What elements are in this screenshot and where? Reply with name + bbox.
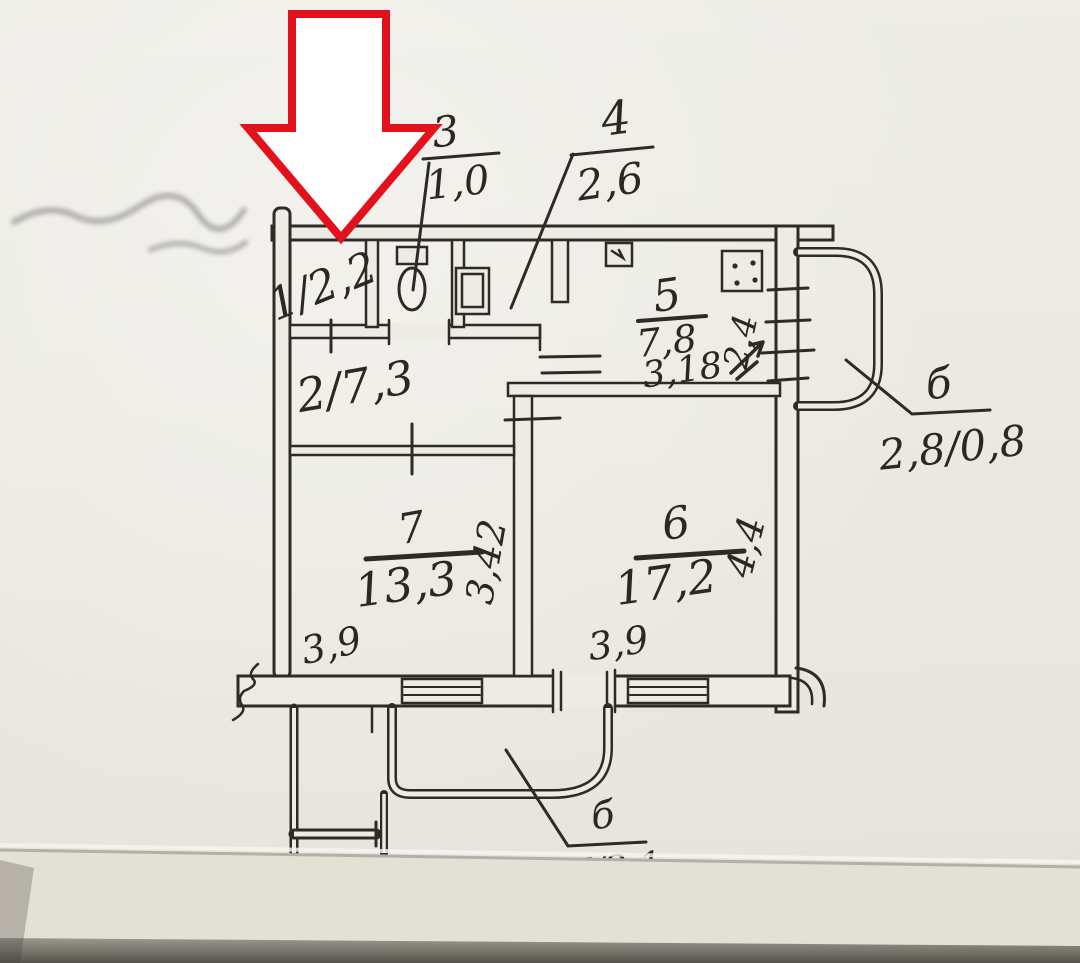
balcony-top-label: б <box>923 358 954 409</box>
stove-symbol <box>722 251 762 291</box>
lower-structure-lines <box>294 708 384 853</box>
room4-area: 2,6 <box>573 153 647 211</box>
toilet-fixture <box>397 247 427 310</box>
balcony-bottom-label: б <box>589 792 617 838</box>
red-arrow-marker <box>248 14 434 238</box>
sink-fixture <box>456 268 489 314</box>
room7-number: 7 <box>394 501 429 554</box>
room2-label: 2/7,3 <box>291 349 417 423</box>
wall-kitchen-left <box>552 240 568 302</box>
room6-area: 17,2 <box>611 548 720 616</box>
window <box>402 679 482 703</box>
wall-room2-room7 <box>290 446 514 455</box>
dimension-room7-width: 3,9 <box>297 617 365 673</box>
door-gap <box>389 323 449 340</box>
room5-number: 5 <box>650 268 685 322</box>
wall-tick <box>768 288 808 290</box>
wall-tick <box>768 378 808 381</box>
window <box>628 679 708 703</box>
dimension-room6-width: 3,9 <box>585 617 651 669</box>
wall-tick <box>766 320 810 322</box>
door-frame-tick <box>542 372 600 373</box>
faint-pencil-smudge <box>14 196 246 252</box>
dimension-room7-depth: 3,42 <box>457 516 515 607</box>
balcony-top-outline <box>798 252 878 406</box>
floor-plan-canvas: 1/2,2 2/7,3 3 1,0 4 2,6 5 7,8 3,18 2,4 7… <box>0 0 1080 963</box>
dimension-room6-depth: 4,4 <box>716 512 774 582</box>
balcony-bottom-outline <box>392 708 608 794</box>
room4-number: 4 <box>597 89 635 147</box>
fraction-line-room4 <box>571 147 653 155</box>
wall-room7-room6 <box>514 396 532 676</box>
wall-tick <box>762 350 814 353</box>
room3-area: 1,0 <box>424 157 492 209</box>
paper-fold-edge <box>0 845 1080 963</box>
door-frame-tick <box>540 356 600 357</box>
vent-shaft <box>606 243 632 266</box>
balcony-door-gap <box>553 674 615 708</box>
wall-tick <box>505 418 560 420</box>
photo-of-floor-plan: 1/2,2 2/7,3 3 1,0 4 2,6 5 7,8 3,18 2,4 7… <box>0 0 1080 963</box>
balcony-top-size: 2,8/0,8 <box>875 415 1028 479</box>
dimension-kitchen-depth: 2,4 <box>716 311 767 373</box>
room6-number: 6 <box>659 496 694 550</box>
wall-top <box>272 226 833 240</box>
